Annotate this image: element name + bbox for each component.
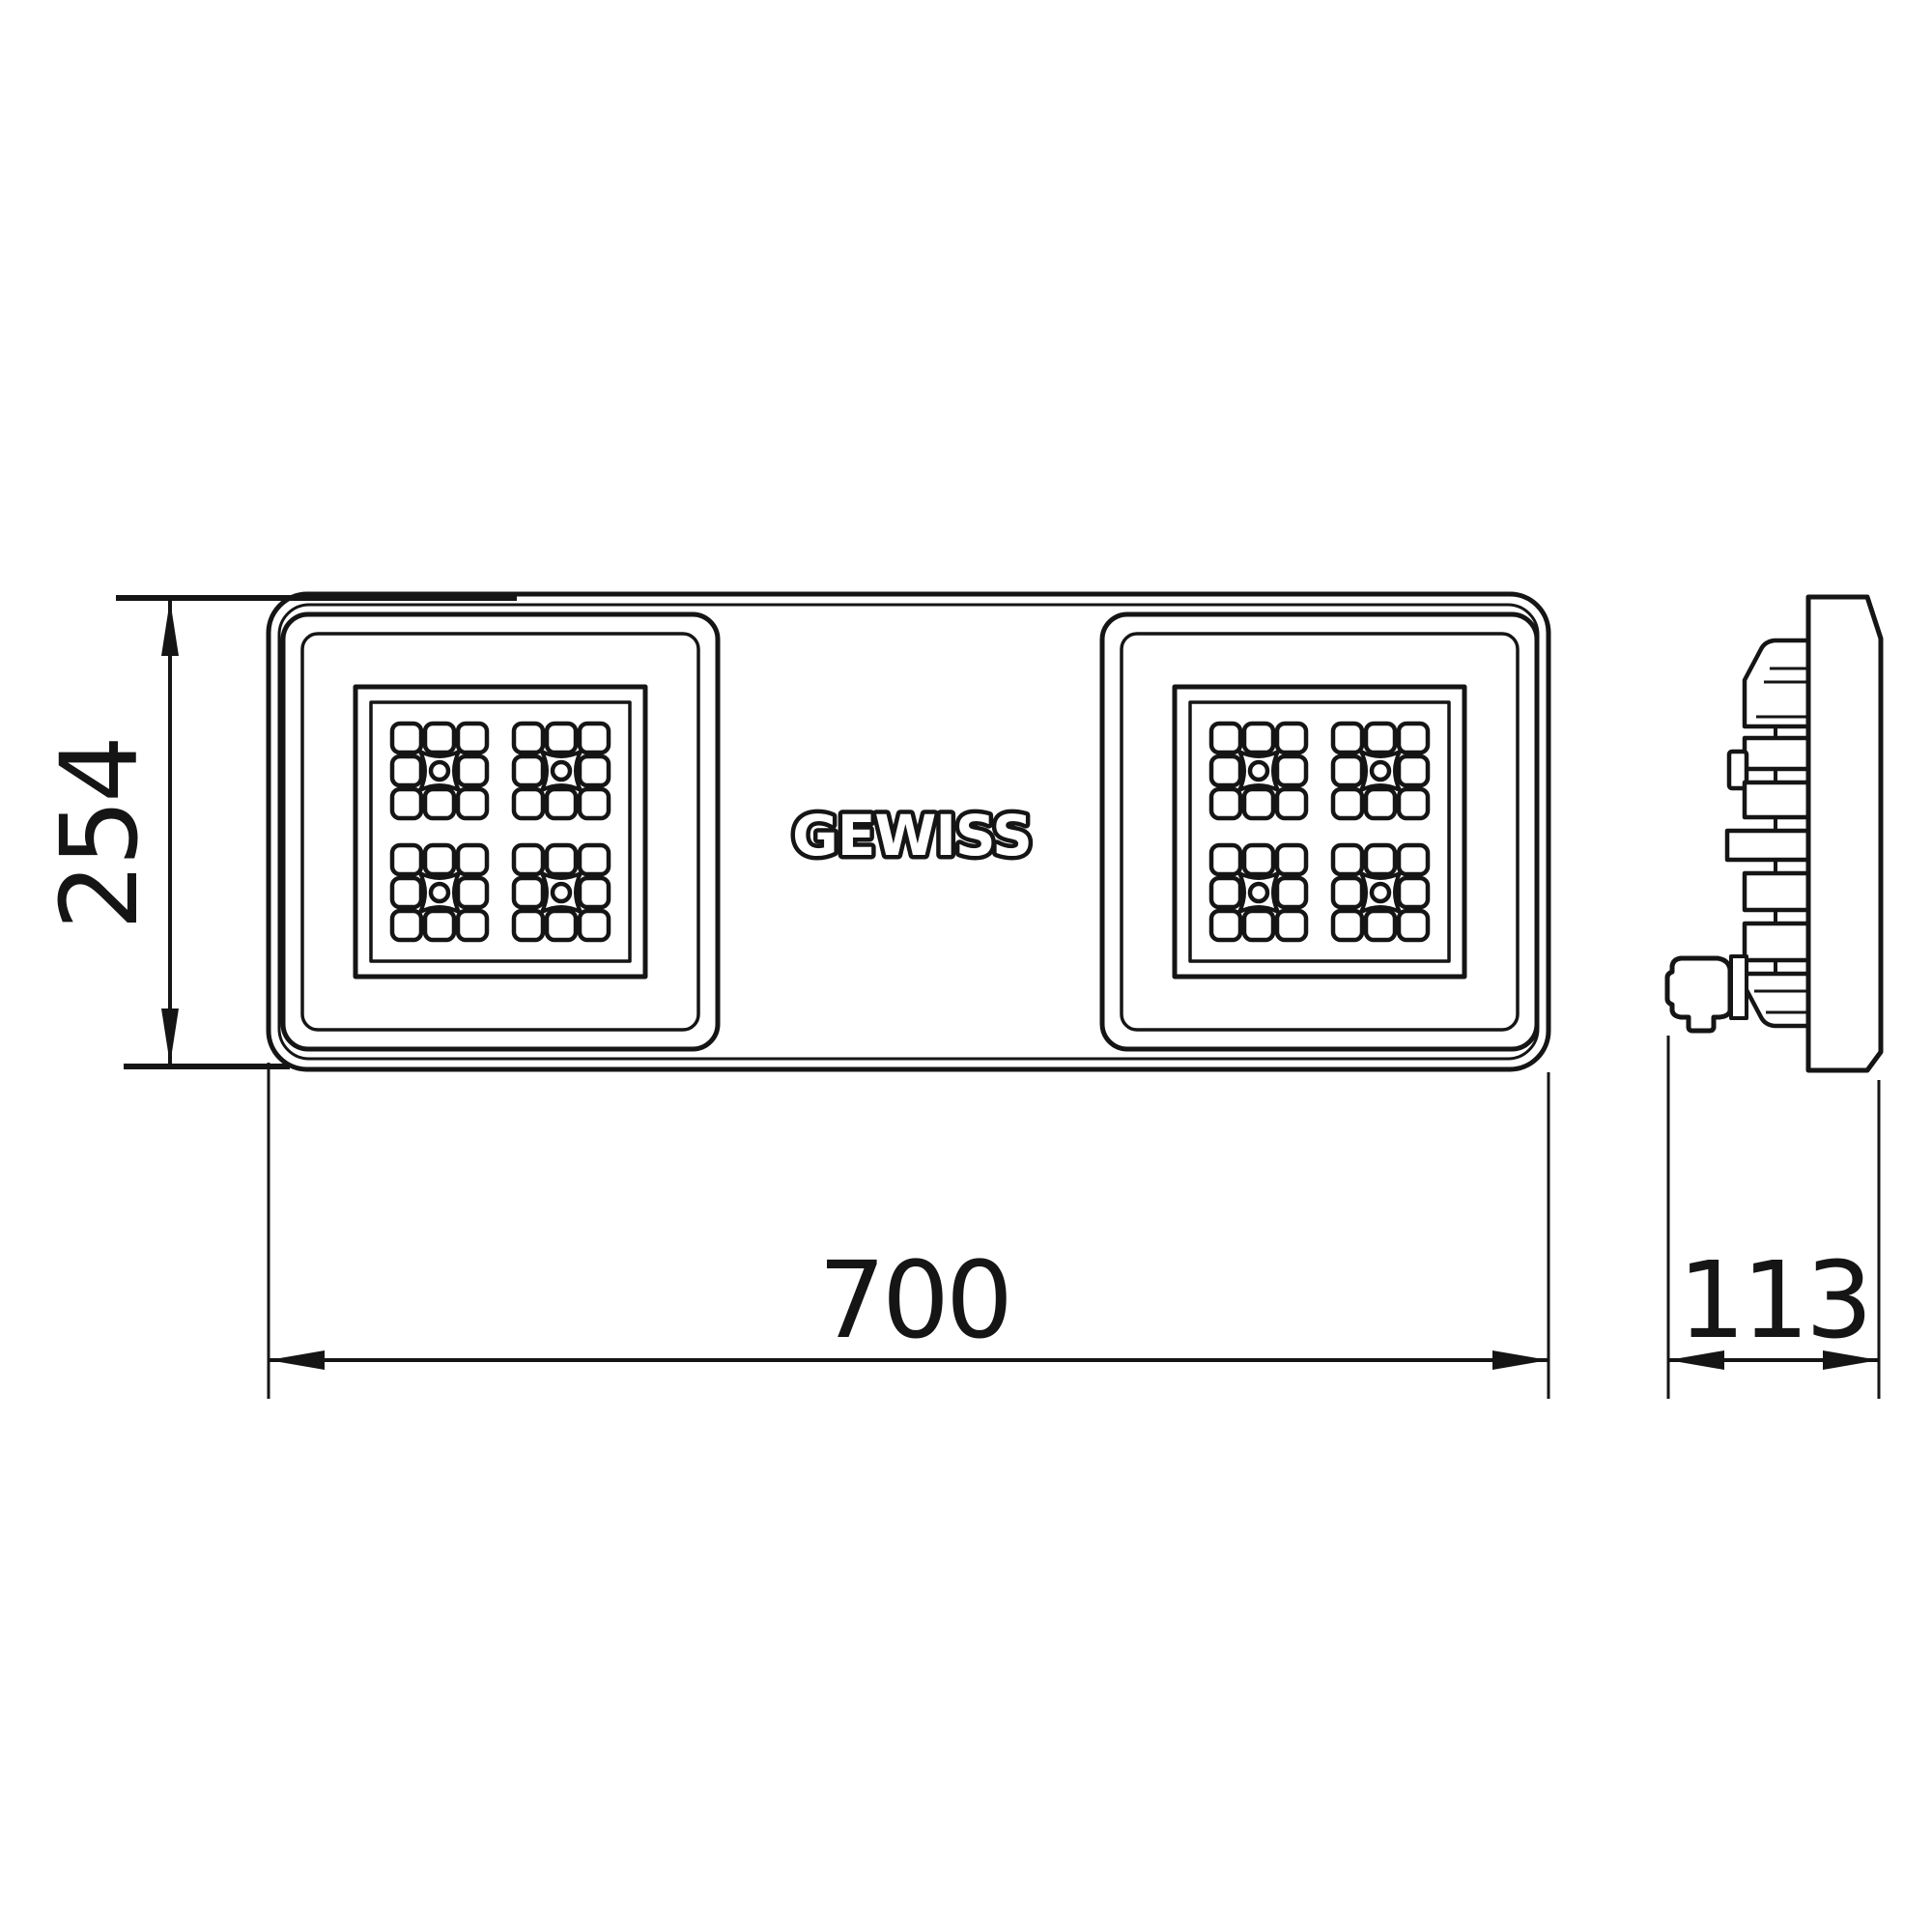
- arrowhead-left: [269, 1350, 325, 1370]
- led-module-right: [1102, 614, 1537, 1049]
- side-profile-view: [1667, 597, 1881, 1070]
- arrowhead-right: [1492, 1350, 1548, 1370]
- heatsink-fin: [1745, 873, 1809, 910]
- arrowhead-up: [161, 600, 179, 656]
- dim-label-width: 700: [818, 1238, 1009, 1362]
- front-view: GEWISS: [269, 594, 1548, 1069]
- technical-drawing: GEWISS 254: [0, 0, 1932, 1932]
- led-module-left: [283, 614, 718, 1049]
- dimension-depth: 113: [1668, 1036, 1879, 1399]
- cable-gland-body: [1667, 958, 1730, 1031]
- arrowhead-down: [161, 1009, 179, 1065]
- heatsink-fin: [1745, 738, 1809, 769]
- dimension-height: 254: [38, 598, 517, 1066]
- dim-label-height: 254: [38, 739, 161, 930]
- heatsink-fin: [1745, 782, 1809, 817]
- dimension-width: 700: [269, 1063, 1548, 1399]
- dim-label-depth: 113: [1678, 1238, 1869, 1362]
- heatsink-block: [1727, 831, 1809, 860]
- heatsink-fin: [1745, 923, 1809, 960]
- cable-gland-neck: [1731, 956, 1747, 1018]
- heatsink-bottom-cap: [1745, 974, 1809, 1026]
- drawing-canvas: GEWISS 254: [0, 0, 1932, 1932]
- gewiss-logo: GEWISS: [792, 803, 1032, 868]
- front-slab-profile: [1808, 597, 1881, 1070]
